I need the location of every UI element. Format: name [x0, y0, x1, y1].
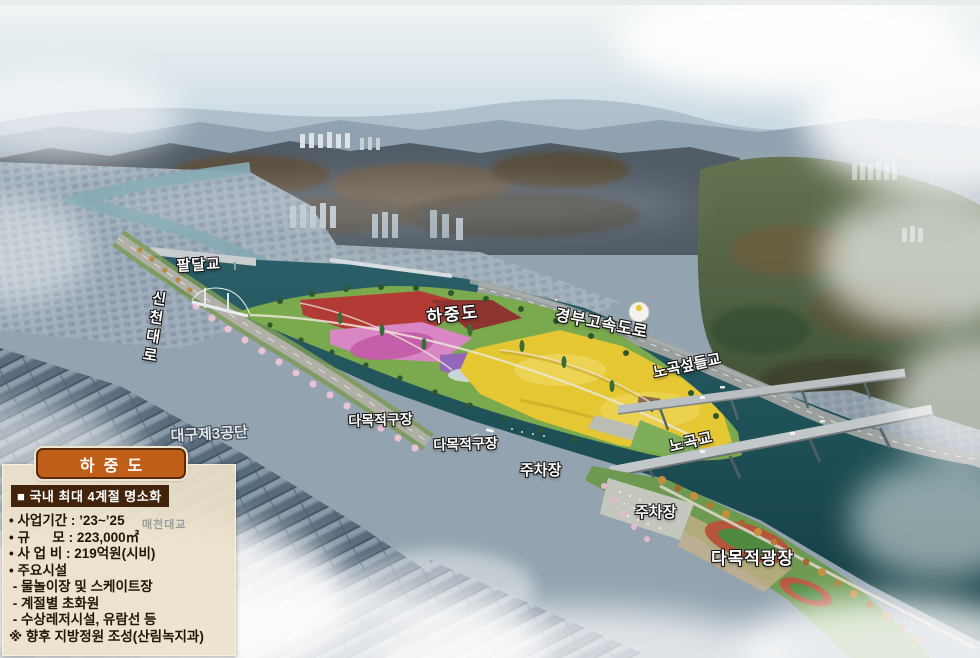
info-line-leisure: - 수상레저시설, 유람선 등 [9, 612, 235, 629]
aerial-rendering-scene: 팔달교 신천대로 하중도 경부고속도로 노곡섶들교 다목적구장 다목적구장 주차… [0, 0, 980, 658]
label-parking-1: 주차장 [520, 459, 561, 480]
info-line-waterpark: - 물놀이장 및 스케이트장 [9, 579, 235, 596]
top-border-strip [0, 0, 980, 5]
label-daegu-3rd-industrial-complex: 대구제3공단 [170, 421, 248, 446]
label-parking-2: 주차장 [635, 501, 676, 522]
label-multipurpose-plaza: 다목적광장 [711, 544, 794, 569]
label-paldal-bridge: 팔달교 [176, 253, 221, 276]
info-line-area: • 규 모 : 223,000㎡ [9, 530, 235, 547]
info-line-period: • 사업기간 : ’23~’25 [9, 513, 235, 530]
label-maecheon-bridge: 매천대교 [142, 516, 186, 532]
info-line-provincial-garden: ※ 향후 지방정원 조성(산림녹지과) [9, 629, 235, 646]
info-panel-lines: • 사업기간 : ’23~’25 • 규 모 : 223,000㎡ • 사 업 … [9, 513, 235, 645]
project-info-panel: ■ 국내 최대 4계절 명소화 • 사업기간 : ’23~’25 • 규 모 :… [2, 464, 236, 656]
info-line-facilities: • 주요시설 [9, 563, 235, 580]
info-line-budget: • 사 업 비 : 219억원(시비) [9, 546, 235, 563]
hajungdo-title-badge: 하중도 [36, 448, 186, 479]
info-line-flower-garden: - 계절별 초화원 [9, 596, 235, 613]
label-multipurpose-field-1: 다목적구장 [348, 409, 413, 431]
label-multipurpose-field-2: 다목적구장 [433, 433, 498, 455]
info-panel-heading: ■ 국내 최대 4계절 명소화 [11, 485, 169, 507]
